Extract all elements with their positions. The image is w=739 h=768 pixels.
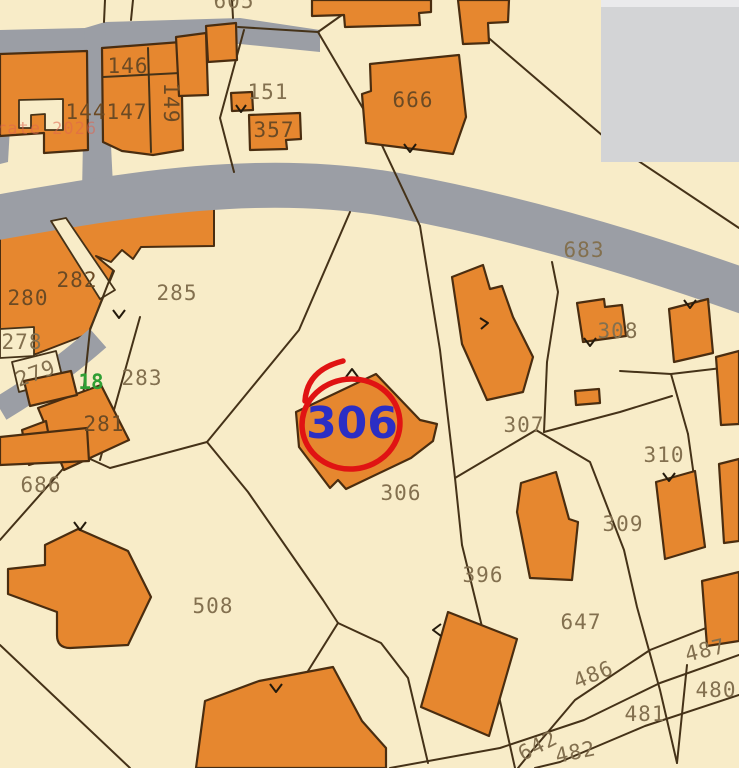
building-footprint[interactable] — [669, 299, 713, 362]
building-footprint[interactable] — [656, 471, 705, 559]
building-footprint[interactable] — [206, 23, 237, 62]
parcel-label-280: 280 — [8, 286, 49, 310]
parcel-label-285: 285 — [157, 281, 198, 305]
parcel-label-306: 306 — [381, 481, 422, 505]
road-number-label: 18 — [78, 370, 103, 394]
watermark-text: rate 2026 — [0, 119, 97, 139]
parcel-label-310: 310 — [644, 443, 685, 467]
parcel-label-683: 683 — [564, 238, 605, 262]
parcel-label-283: 283 — [122, 366, 163, 390]
parcel-label-147: 147 — [107, 100, 148, 124]
parcel-label-307: 307 — [504, 413, 545, 437]
overlay-panel-edge — [601, 0, 739, 7]
parcel-label-146: 146 — [108, 54, 149, 78]
parcel-label-508: 508 — [193, 594, 234, 618]
parcel-label-666: 666 — [393, 88, 434, 112]
overlay-panel — [601, 0, 739, 162]
cadastral-map: 6051461441471491513576666832822802852782… — [0, 0, 739, 768]
parcel-label-647: 647 — [561, 610, 602, 634]
parcel-label-480: 480 — [696, 678, 737, 702]
parcel-label-282: 282 — [57, 268, 98, 292]
parcel-label-309: 309 — [603, 512, 644, 536]
parcel-label-278: 278 — [2, 330, 43, 354]
parcel-label-151: 151 — [248, 80, 289, 104]
building-footprint[interactable] — [575, 389, 600, 405]
cadastral-map-canvas[interactable]: 6051461441471491513576666832822802852782… — [0, 0, 739, 768]
highlighted-parcel-number: 306 — [306, 398, 398, 449]
parcel-label-481: 481 — [625, 702, 666, 726]
parcel-label-396: 396 — [463, 563, 504, 587]
parcel-label-605: 605 — [214, 0, 255, 13]
parcel-label-357: 357 — [254, 118, 295, 142]
parcel-label-149: 149 — [159, 83, 183, 124]
parcel-label-686: 686 — [21, 473, 62, 497]
parcel-label-281: 281 — [84, 412, 125, 436]
parcel-label-308: 308 — [598, 319, 639, 343]
overlay-panel-box — [601, 0, 739, 162]
building-footprint[interactable] — [716, 351, 739, 425]
